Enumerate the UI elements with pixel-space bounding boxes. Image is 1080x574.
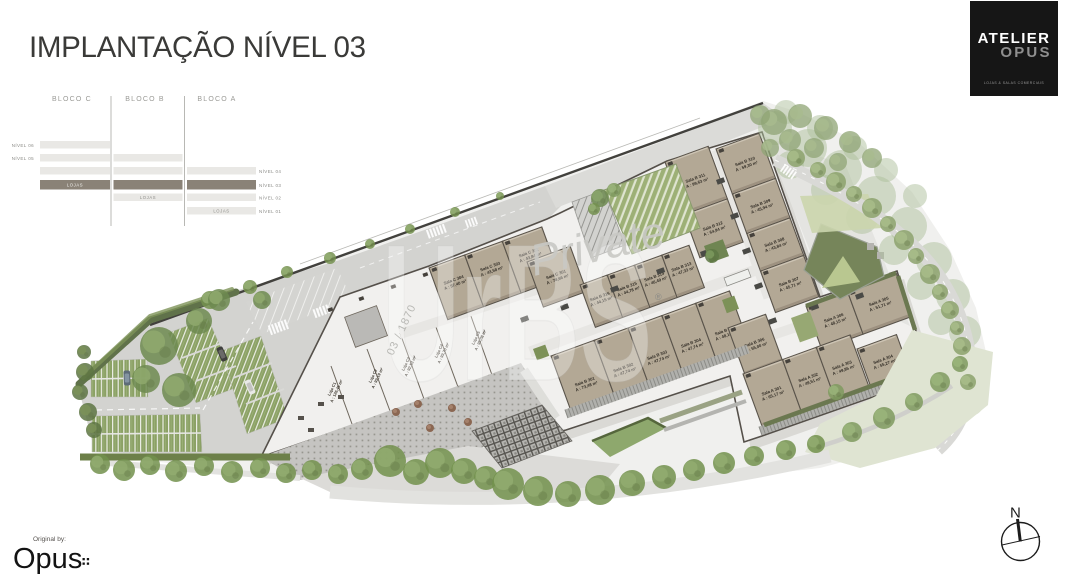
svg-text:NÍVEL 02: NÍVEL 02 xyxy=(259,195,281,201)
svg-text:NÍVEL 06: NÍVEL 06 xyxy=(12,142,34,148)
svg-text:BLOCO B: BLOCO B xyxy=(125,96,165,103)
svg-text:®: ® xyxy=(655,292,662,302)
svg-text:N: N xyxy=(1010,505,1021,522)
svg-text:OPUS: OPUS xyxy=(1000,44,1051,61)
svg-text:NÍVEL 04: NÍVEL 04 xyxy=(259,168,281,174)
svg-text:Original by:: Original by: xyxy=(33,536,66,543)
svg-text:NÍVEL 05: NÍVEL 05 xyxy=(12,155,34,161)
svg-text:LOJAS & SALAS COMERCIAIS: LOJAS & SALAS COMERCIAIS xyxy=(984,81,1044,85)
svg-text:LOJAS: LOJAS xyxy=(140,195,156,200)
svg-text:NÍVEL 03: NÍVEL 03 xyxy=(259,182,281,188)
svg-text:Opus: Opus xyxy=(13,543,82,574)
svg-text:LOJAS: LOJAS xyxy=(213,208,229,213)
svg-text:BLOCO A: BLOCO A xyxy=(197,96,236,103)
svg-text:IMPLANTAÇÃO NÍVEL 03: IMPLANTAÇÃO NÍVEL 03 xyxy=(29,30,366,64)
svg-text:BLOCO C: BLOCO C xyxy=(52,96,92,103)
svg-text:LOJAS: LOJAS xyxy=(67,182,83,187)
svg-text:NÍVEL 01: NÍVEL 01 xyxy=(259,208,281,214)
